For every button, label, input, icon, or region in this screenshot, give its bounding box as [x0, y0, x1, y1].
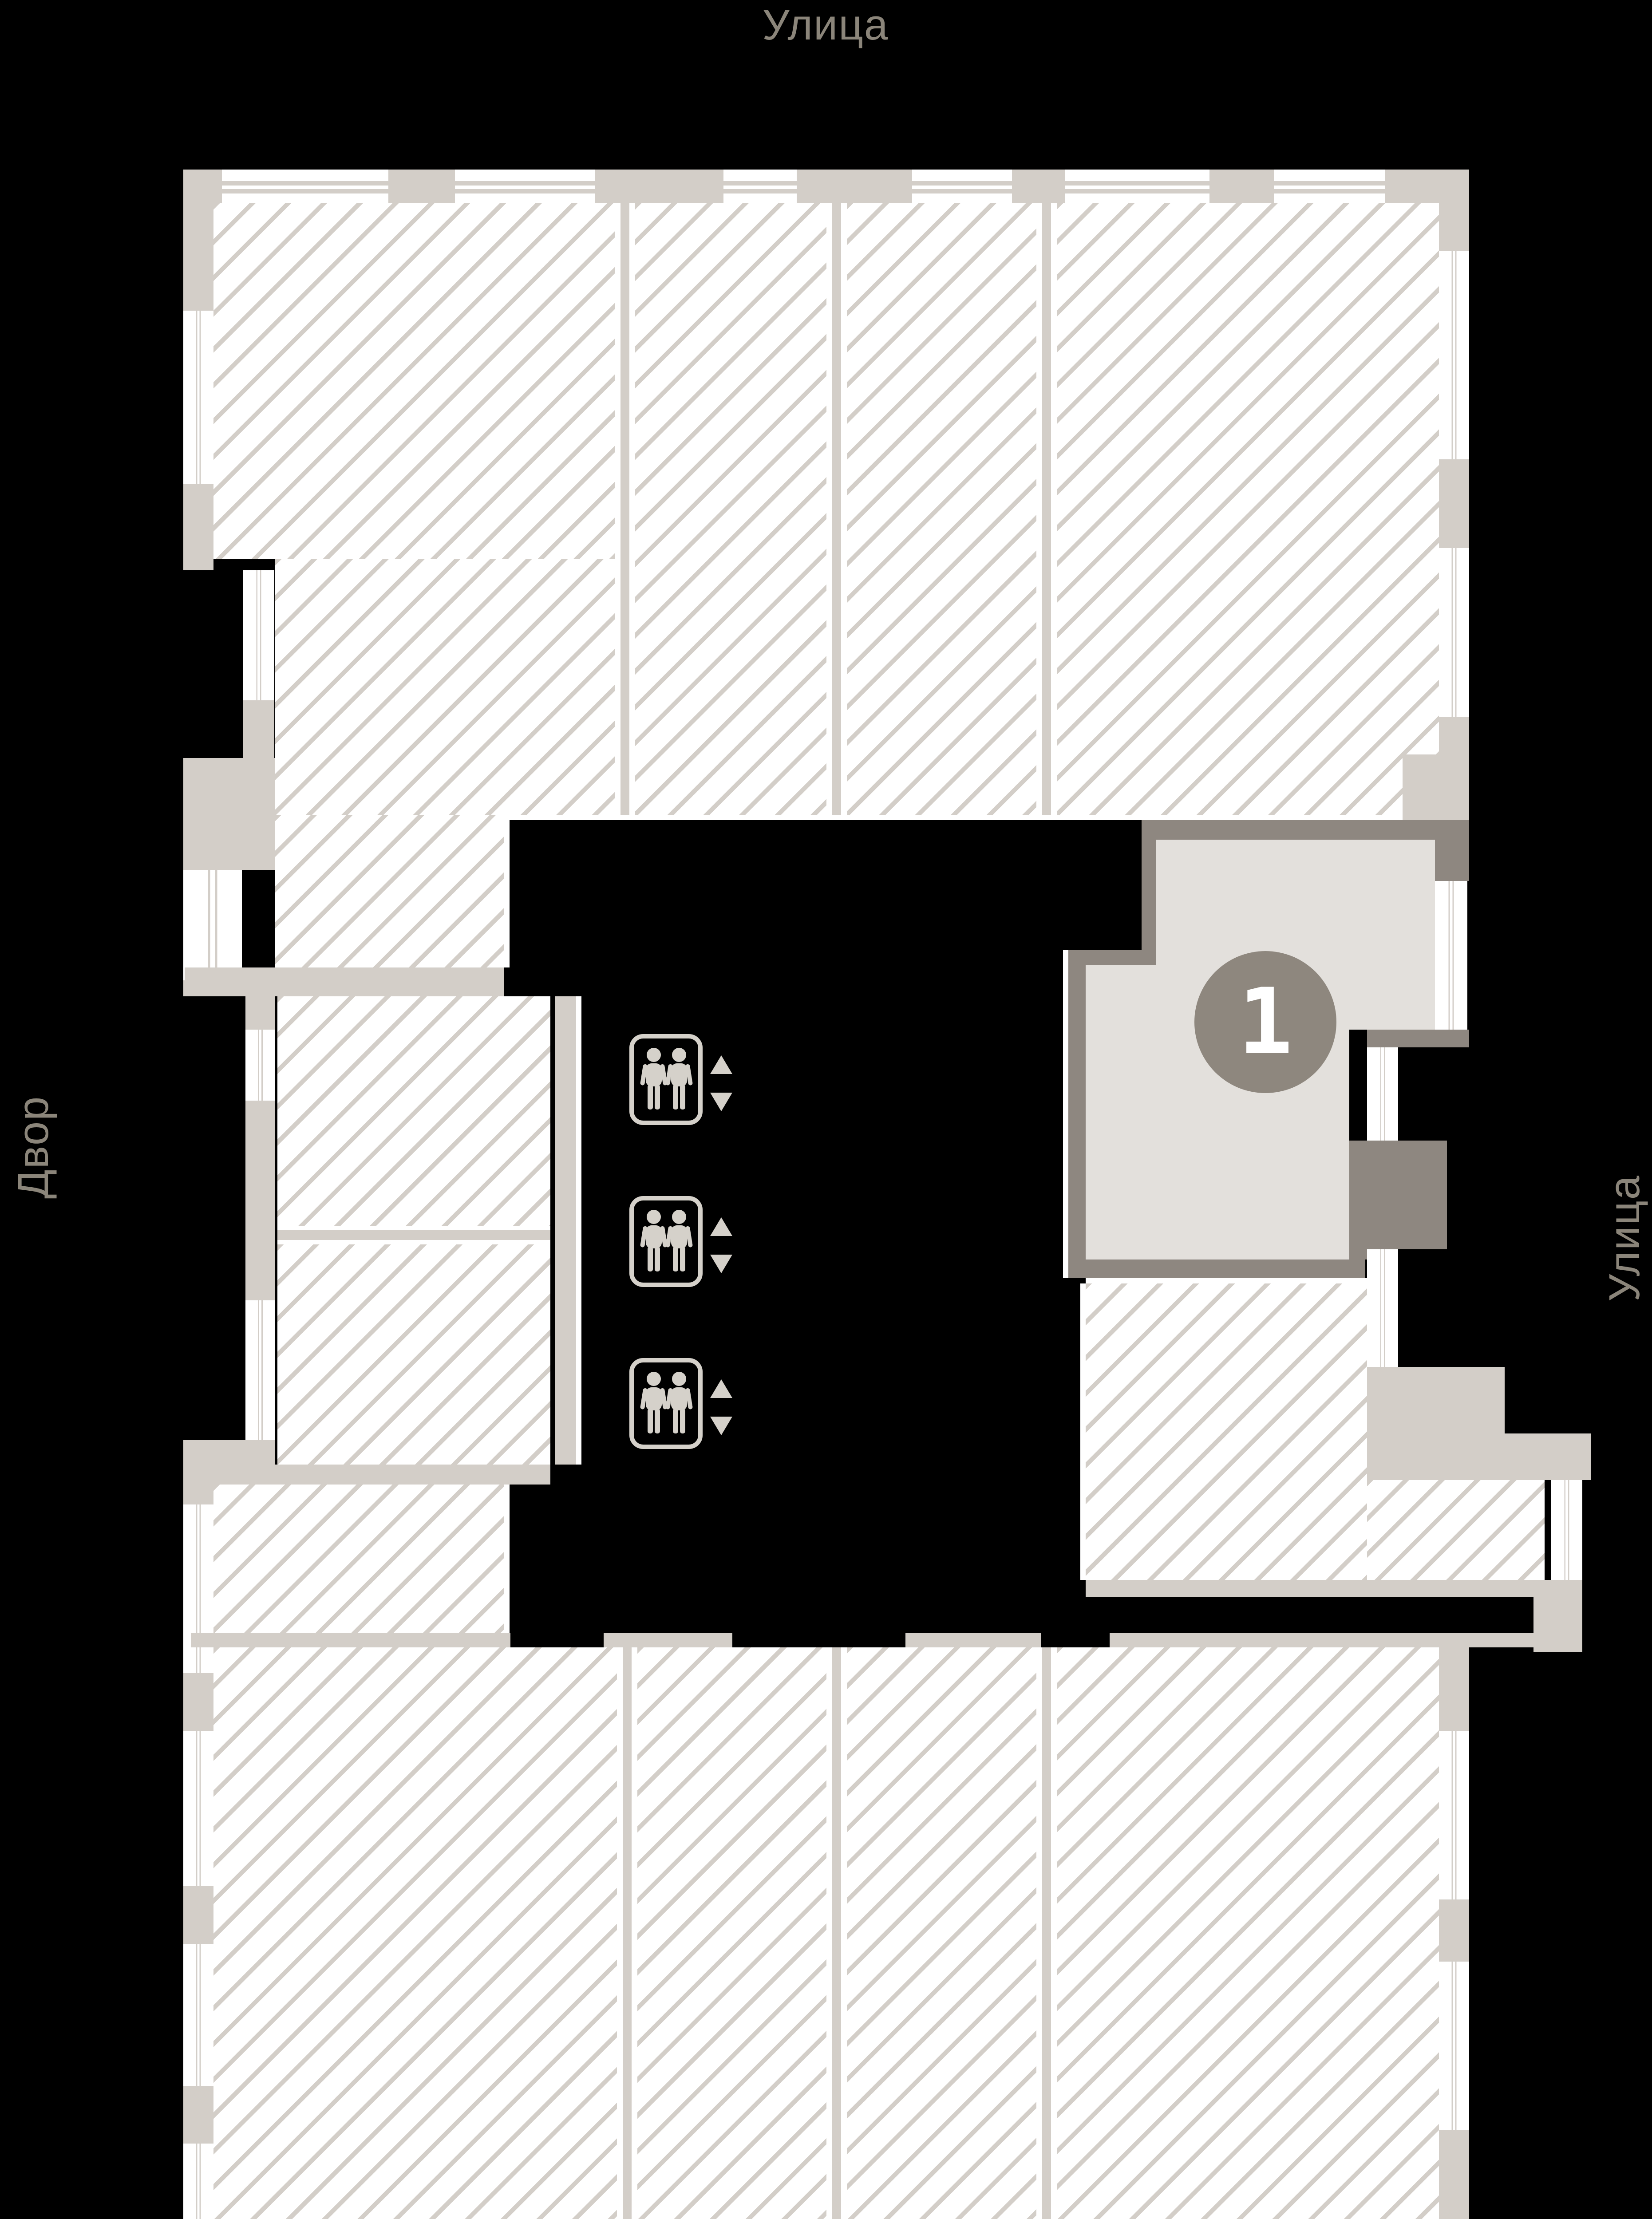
window-right: [1439, 548, 1469, 717]
unit-divider: [826, 203, 847, 815]
unit-divider: [277, 1226, 550, 1244]
window-right: [1439, 1962, 1469, 2130]
wall-core-bottom: [604, 1633, 732, 1647]
wall-room-bottom: [1086, 1580, 1545, 1597]
window-left: [183, 311, 213, 484]
unit-hatched-mid-left-a: [277, 996, 550, 1226]
window-top: [1065, 170, 1209, 203]
wall-pier-out-large: [1367, 1433, 1591, 1480]
wall-core-bottom: [905, 1633, 1041, 1647]
core-edge-gap: [504, 815, 1439, 820]
elevator-up-arrow-icon: [710, 1217, 732, 1236]
wall-right-pier: [1403, 754, 1439, 820]
apartment-1-pier-out: [1367, 1141, 1447, 1249]
wall-left-pier: [183, 758, 275, 870]
wall-room-bottom: [275, 1465, 550, 1485]
apartment-1-floor: [1086, 965, 1156, 1260]
unit-hatched-bottom-4: [1057, 1647, 1439, 2219]
window-right: [1439, 1731, 1469, 1899]
wall-room-bottom: [185, 967, 504, 996]
window-right: [1439, 251, 1469, 459]
elevator-up-arrow-icon: [710, 1379, 732, 1398]
apartment-1-window: [1367, 1047, 1398, 1141]
window-left: [243, 570, 274, 700]
unit-hatched-below-apt1-b: [1367, 1480, 1545, 1580]
apartment-1-wall: [1068, 1260, 1365, 1278]
elevator-down-arrow-icon: [710, 1255, 732, 1273]
window-top: [222, 170, 388, 203]
window-left: [183, 1944, 213, 2086]
unit-hatched-mid-left-b: [277, 1244, 550, 1465]
elevator-icon: [629, 1034, 740, 1125]
apartment-1-wall: [1068, 950, 1156, 965]
apartment-1-wall: [1142, 840, 1156, 950]
apartment-1-wall: [1435, 840, 1469, 881]
elevator-up-arrow-icon: [710, 1055, 732, 1074]
apartment-1-wall: [1349, 1141, 1367, 1260]
core-edge-gap: [504, 820, 510, 967]
elevator-down-arrow-icon: [710, 1417, 732, 1435]
wall-bay-corner: [1533, 1580, 1582, 1652]
window-top: [723, 170, 797, 203]
core-edge-gap: [504, 1485, 510, 1633]
unit-divider: [615, 203, 635, 815]
core-edge-gap: [1086, 1278, 1367, 1283]
window-left: [183, 870, 242, 980]
unit-hatched-top-4: [1057, 203, 1439, 815]
unit-hatched-mid-left-c: [213, 1485, 504, 1633]
window-left: [183, 2144, 213, 2219]
window-bay: [1551, 1480, 1582, 1580]
window-left: [245, 1030, 275, 1101]
unit-hatched-top-1b: [275, 559, 615, 815]
apartment-1-wall: [1068, 965, 1086, 1278]
wall-left-step: [183, 1440, 275, 1485]
core-edge-gap: [1080, 1283, 1086, 1580]
unit-hatched-bottom-2: [637, 1647, 826, 2219]
apartment-1-window: [1367, 1249, 1398, 1283]
apartment-1-window: [1435, 881, 1467, 1030]
wall-core-bottom: [1110, 1633, 1533, 1647]
window-left: [183, 1731, 213, 1886]
apartment-1-wall: [1367, 1030, 1469, 1047]
window-right: [1367, 1283, 1398, 1367]
apartment-1-number: 1: [1238, 977, 1292, 1068]
wall-core-bottom: [191, 1633, 510, 1647]
window-top: [455, 170, 595, 203]
wall-corridor-left: [555, 996, 576, 1465]
unit-divider: [1036, 1647, 1057, 2219]
unit-hatched-top-3: [847, 203, 1036, 815]
floor-plan: 1: [0, 0, 1652, 2219]
unit-hatched-top-1a: [213, 203, 615, 559]
unit-hatched-left-ext: [275, 815, 504, 967]
core-edge-gap: [1063, 950, 1068, 1278]
unit-divider: [826, 1647, 847, 2219]
apartment-1-wall: [1142, 820, 1469, 840]
unit-hatched-bottom-1: [213, 1647, 617, 2219]
unit-hatched-bottom-3: [847, 1647, 1036, 2219]
window-left: [183, 1504, 213, 1673]
wall-pier-out: [1367, 1367, 1505, 1433]
unit-divider: [617, 1647, 637, 2219]
floor-plan-canvas: Улица Двор Улица: [0, 0, 1652, 2219]
window-top: [912, 170, 1012, 203]
elevator-down-arrow-icon: [710, 1093, 732, 1111]
unit-hatched-top-2: [635, 203, 826, 815]
apartment-1-badge[interactable]: 1: [1194, 951, 1336, 1093]
unit-hatched-below-apt1-a: [1086, 1283, 1367, 1580]
unit-divider: [1036, 203, 1057, 815]
core-edge-gap: [576, 996, 581, 1465]
elevator-icon: [629, 1358, 740, 1449]
window-left: [245, 1300, 275, 1440]
window-top: [1274, 170, 1385, 203]
elevator-icon: [629, 1196, 740, 1287]
